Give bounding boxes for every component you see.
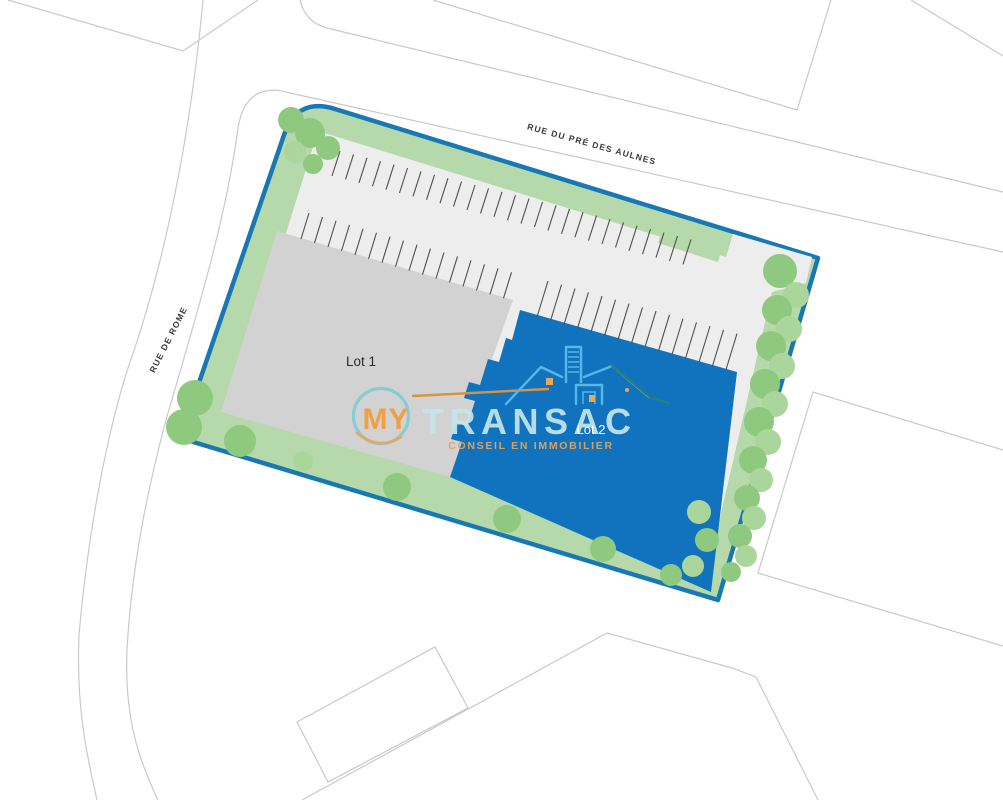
logo-tagline: CONSEIL EN IMMOBILIER (448, 440, 614, 452)
tree-icon (728, 524, 752, 548)
tree-icon (383, 473, 411, 501)
site-plan-svg: MY TRANSAC CONSEIL EN IMMOBILIER RUE DU … (0, 0, 1003, 800)
tree-icon (284, 141, 306, 163)
tree-icon (316, 136, 340, 160)
street-line-south-parcel (302, 633, 818, 800)
street-line-northwest-block (8, 0, 258, 51)
street-line-top-right-corner (911, 0, 1003, 56)
tree-icon (735, 545, 757, 567)
tree-icon (660, 564, 682, 586)
tree-icon (687, 500, 711, 524)
lot1-label: Lot 1 (346, 354, 376, 369)
street-line-south-building (297, 647, 468, 782)
tree-icon (293, 451, 313, 471)
site-plan-page: MY TRANSAC CONSEIL EN IMMOBILIER RUE DU … (0, 0, 1003, 800)
tree-icon (493, 505, 521, 533)
tree-icon (590, 536, 616, 562)
street-line-northeast-parcel (433, 0, 831, 110)
tree-icon (166, 409, 202, 445)
tree-icon (303, 154, 323, 174)
lot2-label: Lot 2 (577, 422, 606, 437)
tree-icon (721, 562, 741, 582)
tree-icon (224, 425, 256, 457)
street-line-east-parcel (758, 392, 1003, 646)
tree-icon (695, 528, 719, 552)
logo-word-my: MY (363, 403, 410, 436)
tree-icon (682, 555, 704, 577)
street-label-rome: RUE DE ROME (147, 305, 189, 374)
